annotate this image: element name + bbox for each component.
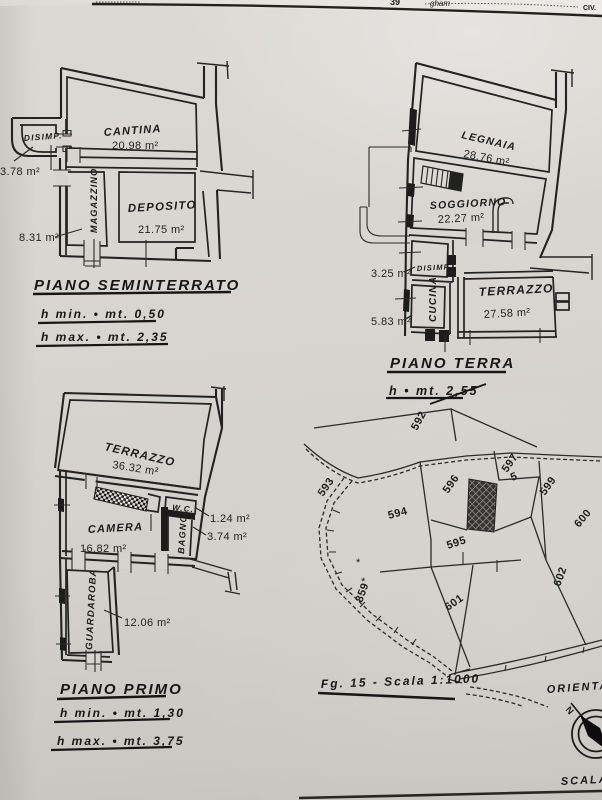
svg-text:594: 594 bbox=[387, 505, 410, 522]
svg-text:h min. • mt. 1,30: h min. • mt. 1,30 bbox=[60, 706, 185, 720]
svg-text:Fg. 15 - Scala 1:1000: Fg. 15 - Scala 1:1000 bbox=[321, 671, 481, 691]
svg-text:TERRAZZO: TERRAZZO bbox=[478, 281, 554, 299]
svg-text:DISIMP.: DISIMP. bbox=[417, 262, 453, 273]
svg-text:CANTINA: CANTINA bbox=[103, 123, 162, 139]
svg-text:16.82 m²: 16.82 m² bbox=[80, 543, 127, 555]
svg-text:CAMERA: CAMERA bbox=[88, 521, 144, 536]
svg-text:12.06 m²: 12.06 m² bbox=[124, 617, 171, 629]
svg-text:20.98 m²: 20.98 m² bbox=[112, 140, 159, 152]
svg-text:28.76 m²: 28.76 m² bbox=[462, 148, 510, 169]
svg-text:22.27 m²: 22.27 m² bbox=[438, 212, 485, 226]
svg-text:N: N bbox=[563, 705, 576, 718]
svg-text:h max. • mt. 3,75: h max. • mt. 3,75 bbox=[57, 734, 185, 748]
svg-text:595: 595 bbox=[445, 534, 468, 552]
svg-text:601: 601 bbox=[443, 592, 466, 613]
svg-text:CIV.: CIV. bbox=[583, 5, 596, 12]
svg-text:5.83 m²: 5.83 m² bbox=[371, 316, 411, 328]
svg-text:PIANO TERRA: PIANO TERRA bbox=[390, 355, 515, 372]
svg-text:593: 593 bbox=[316, 476, 337, 499]
svg-text:596: 596 bbox=[441, 473, 462, 496]
svg-text:8.31 m²: 8.31 m² bbox=[19, 232, 59, 244]
svg-text:21.75 m²: 21.75 m² bbox=[138, 224, 185, 236]
svg-text:DEPOSITO: DEPOSITO bbox=[128, 199, 197, 215]
svg-text:600: 600 bbox=[572, 507, 594, 530]
svg-text:MAGAZZINO: MAGAZZINO bbox=[89, 168, 99, 233]
svg-text:*: * bbox=[361, 576, 366, 588]
svg-text:CUCINA: CUCINA bbox=[428, 276, 439, 322]
svg-text:3.25 m²: 3.25 m² bbox=[371, 268, 411, 280]
svg-text:39: 39 bbox=[390, 0, 400, 7]
svg-text:5: 5 bbox=[509, 470, 519, 484]
svg-text:h min. • mt. 0,50: h min. • mt. 0,50 bbox=[41, 307, 166, 321]
svg-text:BAGNO: BAGNO bbox=[176, 514, 189, 554]
svg-text:SCALA L: SCALA L bbox=[561, 773, 602, 788]
svg-text:SOGGIORNO: SOGGIORNO bbox=[430, 196, 507, 212]
svg-text:*: * bbox=[356, 557, 361, 569]
svg-text:h max. • mt. 2,35: h max. • mt. 2,35 bbox=[41, 330, 169, 344]
svg-text:3.74 m²: 3.74 m² bbox=[207, 531, 247, 543]
svg-text:3.78 m²: 3.78 m² bbox=[0, 166, 40, 178]
svg-text:ORIENTAM: ORIENTAM bbox=[546, 679, 602, 696]
svg-text:GUARDAROBA: GUARDAROBA bbox=[84, 568, 99, 650]
svg-text:gham: gham bbox=[430, 0, 450, 8]
svg-text:27.58 m²: 27.58 m² bbox=[484, 307, 531, 321]
svg-text:1.24 m²: 1.24 m² bbox=[210, 513, 250, 525]
svg-text:602: 602 bbox=[552, 565, 570, 588]
